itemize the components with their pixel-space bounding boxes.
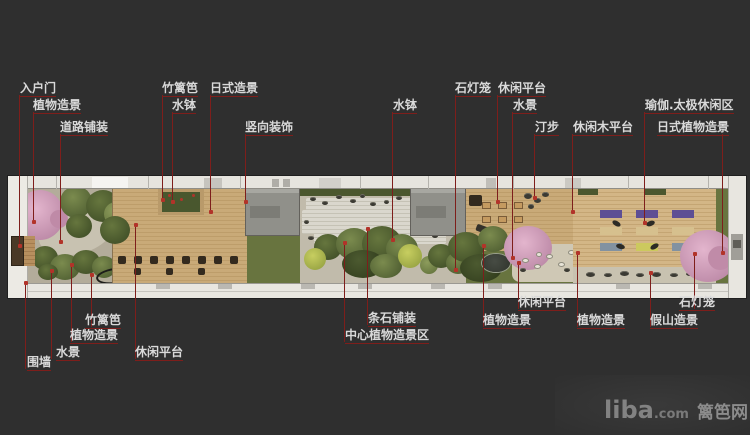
leader-dot: [693, 252, 697, 256]
leader-line: [172, 112, 173, 201]
leader-line: [392, 112, 393, 239]
leader-line: [344, 242, 345, 342]
leader-dot: [649, 271, 653, 275]
leader-dot: [244, 200, 248, 204]
leader-dot: [50, 269, 54, 273]
annotation-label: 休闲平台: [518, 296, 566, 311]
leader-dot: [343, 241, 347, 245]
leader-dot: [32, 220, 36, 224]
leader-line: [497, 95, 498, 201]
leader-line: [722, 134, 723, 252]
annotation-label: 水钵: [393, 99, 417, 114]
annotation-label: 围墙: [27, 356, 51, 371]
annotation-label: 入户门: [20, 82, 56, 97]
annotation-label: 植物造景: [577, 314, 625, 329]
leader-dot: [721, 251, 725, 255]
annotation-label: 植物造景: [70, 329, 118, 344]
annotation-label: 水景: [513, 99, 537, 114]
leader-dot: [209, 210, 213, 214]
annotation-label: 休闲平台: [135, 346, 183, 361]
annotation-label: 日式植物造景: [657, 121, 729, 136]
leader-dot: [576, 251, 580, 255]
annotation-label: 汀步: [535, 121, 559, 136]
leader-line: [162, 95, 163, 199]
leader-line: [19, 95, 20, 245]
annotation-label: 竹篱笆: [162, 82, 198, 97]
leader-dot: [482, 244, 486, 248]
annotation-label: 植物造景: [483, 314, 531, 329]
annotation-label: 休闲平台: [498, 82, 546, 97]
annotation-label: 竹篱笆: [85, 314, 121, 329]
annotation-label: 中心植物造景区: [345, 329, 429, 344]
annotation-label: 道路铺装: [60, 121, 108, 136]
annotation-label: 石灯笼: [679, 296, 715, 311]
screenshot-canvas: 入户门植物造景道路铺装竹篱笆水钵日式造景竖向装饰水钵石灯笼休闲平台水景汀步休闲木…: [0, 0, 750, 435]
leader-dot: [171, 200, 175, 204]
annotation-label: 石灯笼: [455, 82, 491, 97]
annotation-label: 条石铺装: [368, 312, 416, 327]
leader-dot: [90, 273, 94, 277]
leader-dot: [511, 256, 515, 260]
annotation-label: 水景: [56, 346, 80, 361]
annotation-label: 植物造景: [33, 99, 81, 114]
annotation-label: 竖向装饰: [245, 121, 293, 136]
annotation-label: 休闲木平台: [573, 121, 633, 136]
leader-line: [51, 270, 52, 359]
annotation-label: 日式造景: [210, 82, 258, 97]
leader-dot: [59, 240, 63, 244]
leader-line: [512, 112, 513, 257]
leader-line: [534, 134, 535, 197]
leader-dot: [517, 261, 521, 265]
annotation-label: 假山造景: [650, 314, 698, 329]
leader-dot: [533, 196, 537, 200]
leader-line: [33, 112, 34, 221]
annotation-label: 水钵: [172, 99, 196, 114]
leader-line: [135, 224, 136, 359]
annotation-label: 瑜伽.太极休闲区: [645, 99, 734, 114]
leader-line: [25, 282, 26, 369]
leader-dot: [643, 221, 647, 225]
leader-dot: [24, 281, 28, 285]
leader-line: [644, 112, 645, 222]
leader-dot: [70, 263, 74, 267]
leader-line: [455, 95, 456, 269]
leader-line: [60, 134, 61, 241]
leader-dot: [161, 198, 165, 202]
leader-line: [245, 134, 246, 201]
leader-line: [210, 95, 211, 211]
leader-dot: [391, 238, 395, 242]
leader-dot: [134, 223, 138, 227]
leader-dot: [571, 210, 575, 214]
annotations-layer: 入户门植物造景道路铺装竹篱笆水钵日式造景竖向装饰水钵石灯笼休闲平台水景汀步休闲木…: [0, 0, 750, 435]
leader-dot: [496, 200, 500, 204]
leader-dot: [18, 244, 22, 248]
leader-dot: [366, 227, 370, 231]
leader-dot: [454, 268, 458, 272]
leader-line: [572, 134, 573, 211]
